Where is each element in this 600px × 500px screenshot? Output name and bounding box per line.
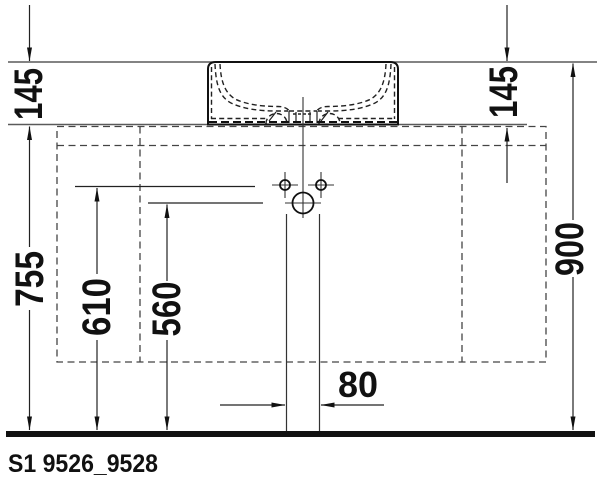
floor-line	[6, 431, 595, 437]
console-dashed-outline	[57, 127, 546, 363]
dim-label-560: 560	[145, 282, 189, 337]
dim-label-755: 755	[8, 251, 52, 307]
dim-label-610: 610	[75, 278, 119, 336]
technical-drawing-canvas: 145 755 610 560 145 900 80 S1 9526_9528	[0, 0, 600, 500]
dim-label-145-right: 145	[482, 66, 526, 118]
technical-drawing: 145 755 610 560 145 900 80 S1 9526_9528	[0, 0, 600, 500]
dim-label-900: 900	[548, 222, 592, 276]
dim-label-145-left: 145	[7, 68, 51, 120]
dim-label-80: 80	[338, 364, 378, 405]
drain-pipe	[287, 214, 320, 431]
product-code-label: S1 9526_9528	[8, 450, 158, 478]
